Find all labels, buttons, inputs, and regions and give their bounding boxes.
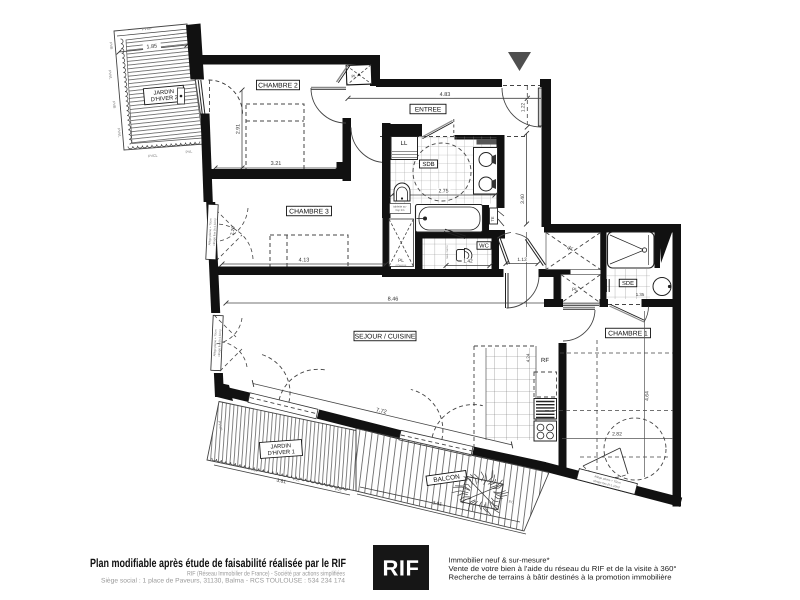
svg-text:4.64: 4.64: [645, 391, 651, 401]
svg-text:lave-mains: lave-mains: [445, 245, 449, 259]
svg-text:PL: PL: [351, 74, 357, 79]
svg-text:WC: WC: [479, 243, 489, 250]
svg-text:ENTREE: ENTREE: [415, 106, 442, 113]
svg-text:4.83: 4.83: [440, 92, 451, 98]
svg-text:1.22: 1.22: [521, 103, 527, 113]
svg-text:CHAMBRE 3: CHAMBRE 3: [289, 208, 329, 215]
svg-text:LL: LL: [401, 140, 408, 147]
svg-text:Plan modifiable après étude de: Plan modifiable après étude de faisabili…: [90, 556, 346, 570]
svg-text:4.24: 4.24: [526, 353, 531, 362]
svg-text:1.13: 1.13: [517, 257, 527, 263]
svg-text:PVL: PVL: [185, 150, 192, 154]
svg-text:PL: PL: [572, 287, 578, 293]
svg-text:3.40: 3.40: [520, 194, 526, 204]
svg-text:8.46: 8.46: [388, 297, 399, 303]
svg-text:2.82: 2.82: [612, 432, 622, 438]
svg-text:2.91: 2.91: [236, 124, 242, 134]
svg-text:CHAMBRE 2: CHAMBRE 2: [258, 82, 298, 89]
svg-text:SDE: SDE: [622, 280, 634, 287]
svg-text:2.75: 2.75: [438, 189, 448, 195]
svg-text:RIF (Réseau Immobilier de Fran: RIF (Réseau Immobilier de France) - Soci…: [187, 571, 346, 578]
svg-text:SDB: SDB: [422, 161, 434, 168]
svg-text:Siège social : 1 place de Pave: Siège social : 1 place de Paveurs, 31130…: [101, 578, 345, 585]
svg-text:hsp 2m: hsp 2m: [396, 209, 406, 212]
svg-text:CHAMBRE 1: CHAMBRE 1: [608, 330, 648, 337]
svg-text:RF: RF: [541, 357, 549, 364]
svg-text:1.85: 1.85: [146, 44, 157, 51]
svg-text:1.42: 1.42: [463, 259, 473, 265]
svg-text:RIF: RIF: [383, 556, 420, 581]
svg-text:réhausse: réhausse: [396, 264, 407, 267]
svg-text:3.21: 3.21: [271, 161, 282, 167]
svg-text:PVCL: PVCL: [148, 154, 158, 159]
svg-text:SEJOUR / CUISINE: SEJOUR / CUISINE: [355, 333, 416, 340]
svg-text:4.13: 4.13: [299, 258, 310, 264]
svg-text:1.35: 1.35: [636, 292, 645, 297]
svg-text:Recherche de terrains à bâtir: Recherche de terrains à bâtir destinés à…: [449, 573, 672, 582]
svg-text:TE: TE: [490, 216, 495, 221]
